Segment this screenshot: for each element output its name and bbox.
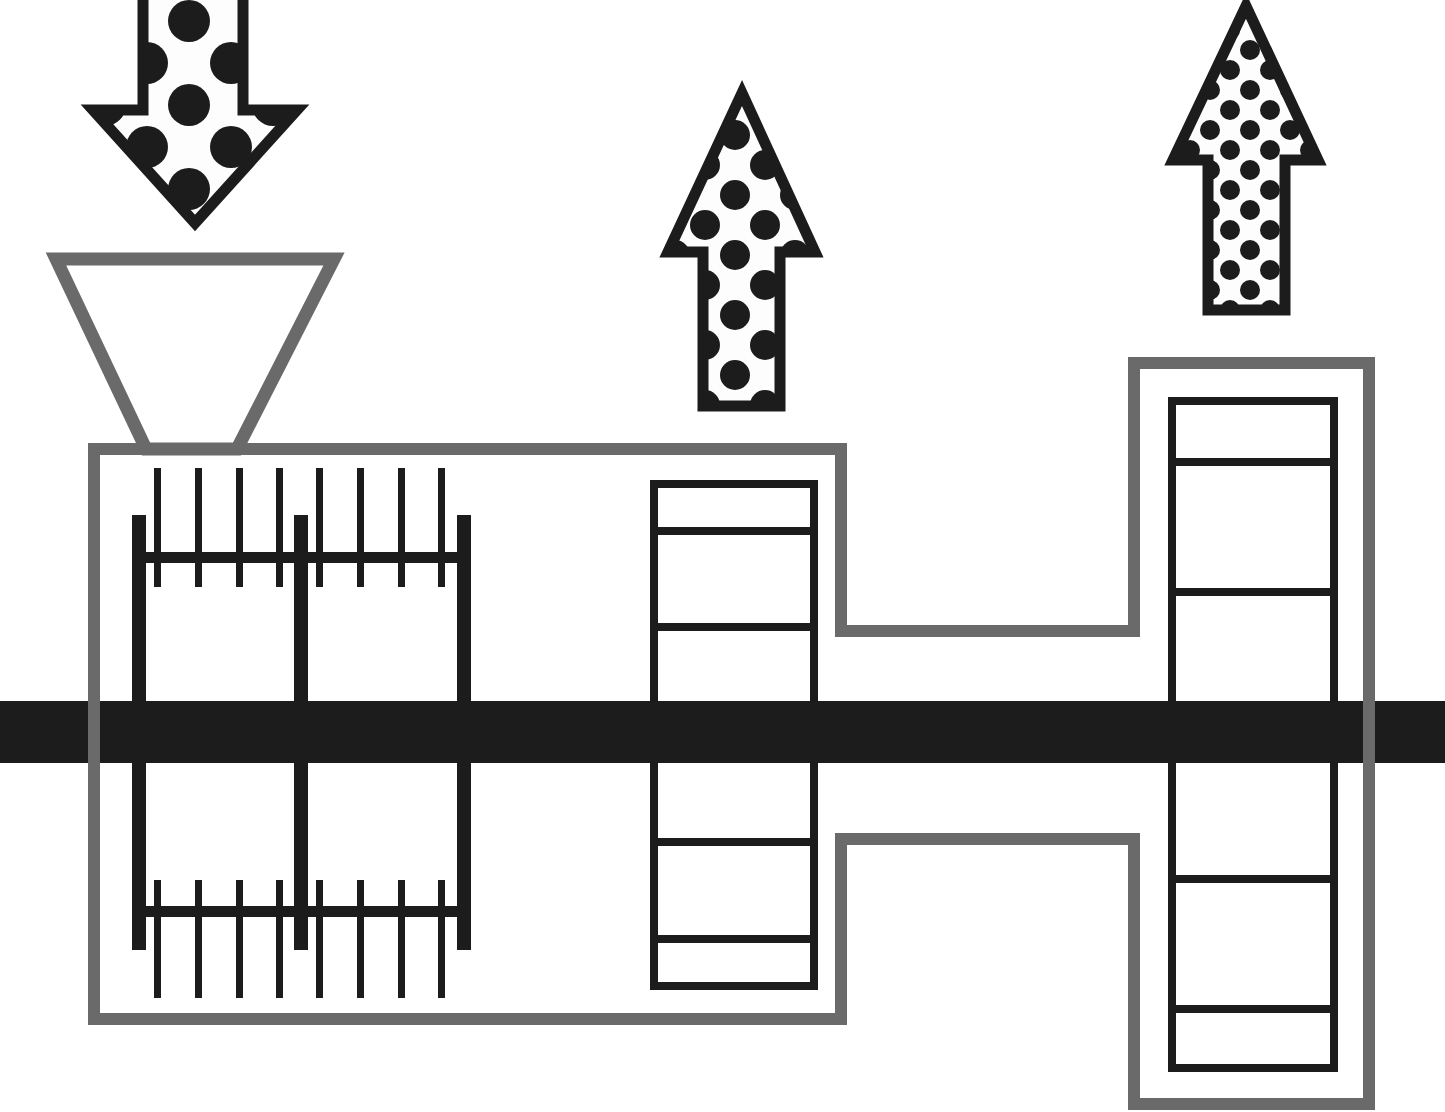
middle-block-left-edge-lower	[650, 763, 658, 990]
right-block-bottom-edge	[1168, 1064, 1338, 1072]
lower-pin	[154, 880, 161, 998]
right-block-divider	[1168, 1005, 1338, 1013]
upper-comb-post-left	[132, 515, 146, 701]
right-block-divider	[1168, 875, 1338, 883]
lower-pin	[398, 880, 405, 998]
upper-pin	[236, 468, 243, 587]
upper-pin	[398, 468, 405, 587]
process-schematic	[0, 0, 1445, 1112]
lower-pin	[357, 880, 364, 998]
right-block-divider	[1168, 588, 1338, 596]
lower-pin	[236, 880, 243, 998]
middle-block-divider	[650, 838, 818, 846]
lower-comb-post-left	[132, 763, 146, 950]
middle-block-divider	[650, 935, 818, 943]
upper-comb-post-right	[457, 515, 471, 701]
lower-pin	[438, 880, 445, 998]
upper-comb-post-middle	[294, 515, 308, 701]
upper-pin	[154, 468, 161, 587]
lower-comb-bar	[132, 906, 471, 917]
upper-pin	[438, 468, 445, 587]
vent-arrow-left-icon	[668, 93, 815, 406]
vent-arrow-right-icon	[1173, 6, 1318, 310]
right-block-left-edge-upper	[1168, 397, 1176, 701]
lower-comb-post-middle	[294, 763, 308, 950]
middle-block-divider	[650, 623, 818, 631]
middle-block-left-edge-upper	[650, 480, 658, 701]
lower-pin	[195, 880, 202, 998]
feed-arrow-icon	[93, 0, 297, 223]
right-block-top-edge	[1168, 397, 1338, 405]
upper-comb-bar	[132, 552, 471, 563]
upper-pin	[276, 468, 283, 587]
right-block-right-edge-lower	[1330, 763, 1338, 1072]
lower-pin	[316, 880, 323, 998]
middle-block-right-edge-lower	[810, 763, 818, 990]
upper-pin	[357, 468, 364, 587]
right-block-left-edge-lower	[1168, 763, 1176, 1072]
lower-comb-post-right	[457, 763, 471, 950]
right-block-right-edge-upper	[1330, 397, 1338, 701]
middle-block-divider	[650, 527, 818, 535]
lower-pin	[276, 880, 283, 998]
right-block-divider	[1168, 458, 1338, 466]
upper-pin	[316, 468, 323, 587]
upper-pin	[195, 468, 202, 587]
middle-block-right-edge-upper	[810, 480, 818, 701]
middle-block-top-edge	[650, 480, 818, 488]
feed-hopper	[56, 259, 334, 449]
middle-block-bottom-edge	[650, 982, 818, 990]
